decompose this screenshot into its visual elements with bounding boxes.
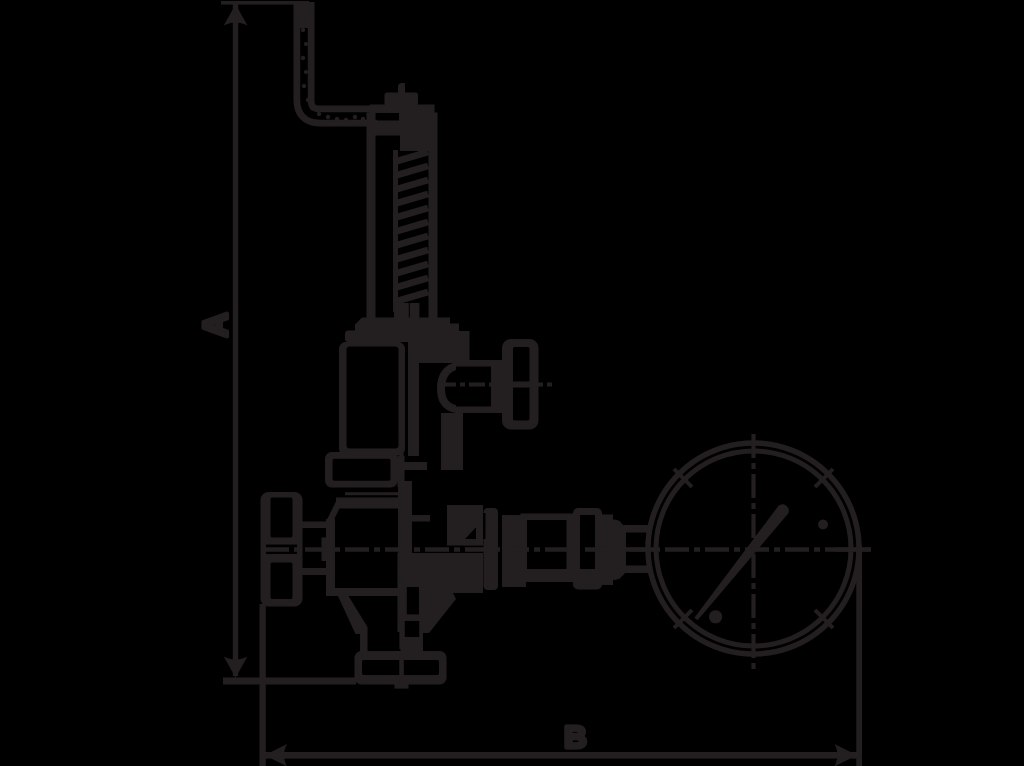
svg-text:A: A [197,313,235,338]
svg-text:B: B [564,720,586,755]
